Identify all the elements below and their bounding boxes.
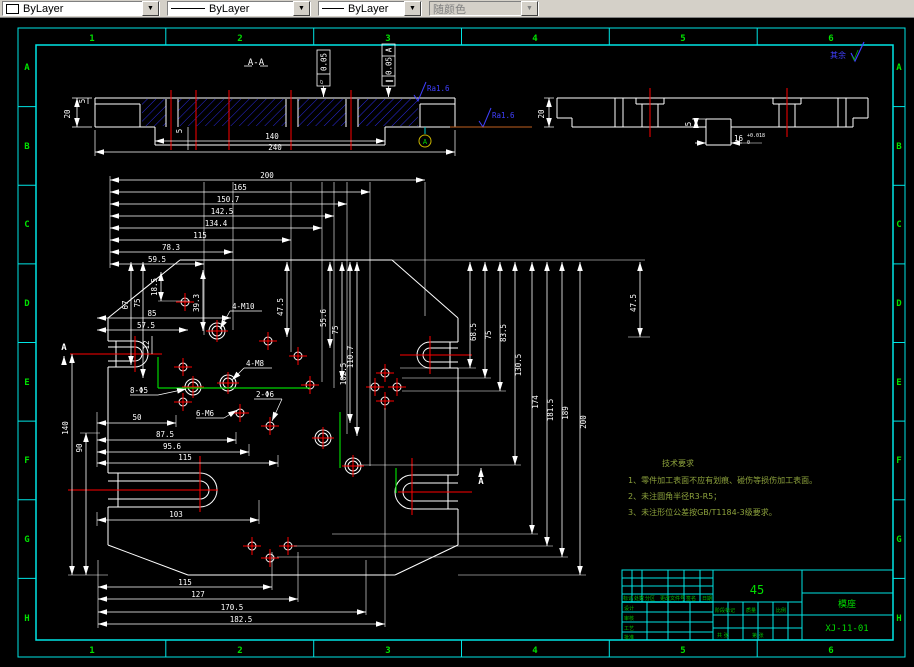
right-dims: 68.5 75 83.5 130.5 174 181.5 189 200 <box>469 262 588 575</box>
svg-text:6-M6: 6-M6 <box>196 409 215 418</box>
title-block: 45 模座 XJ-11-01 标记 处数 分区 更改文件号 签名 日期 设计 审… <box>622 570 893 641</box>
svg-text:共 张: 共 张 <box>717 632 729 639</box>
left-dims: 140 90 <box>61 354 86 575</box>
drawing-number: XJ-11-01 <box>825 624 868 634</box>
svg-text:C: C <box>24 220 29 230</box>
svg-text:240: 240 <box>268 143 282 152</box>
cad-window: ByLayer ▼ ByLayer ▼ ByLayer ▼ 随颜色 ▼ <box>0 0 914 667</box>
svg-text:140: 140 <box>265 132 279 141</box>
svg-text:3: 3 <box>385 34 390 44</box>
section-view-aa: A-A <box>63 44 532 156</box>
svg-text:18.5: 18.5 <box>150 278 159 296</box>
flatness-fcf: ▱ 0.05 <box>317 50 331 97</box>
svg-text:A: A <box>478 477 484 487</box>
svg-text:H: H <box>24 614 29 624</box>
svg-text:50: 50 <box>132 413 142 422</box>
svg-text:Ra1.6: Ra1.6 <box>492 111 515 120</box>
bottom-left-dims: 50 87.5 95.6 115 103 <box>97 413 278 520</box>
svg-text:67: 67 <box>121 300 130 309</box>
svg-text:134.4: 134.4 <box>205 219 228 228</box>
svg-text:4: 4 <box>532 34 538 44</box>
svg-text:75: 75 <box>331 325 340 334</box>
svg-text:181.5: 181.5 <box>546 399 555 422</box>
svg-text:12: 12 <box>142 340 151 349</box>
svg-text:G: G <box>24 535 29 545</box>
svg-text:其余: 其余 <box>830 50 846 60</box>
svg-text:▱: ▱ <box>317 79 326 84</box>
svg-text:比例: 比例 <box>776 607 786 614</box>
right-section-outline <box>557 98 868 145</box>
svg-text:127: 127 <box>191 590 205 599</box>
datum-symbol: A <box>419 127 431 147</box>
top-dims: 200 165 150.7 142.5 134.4 115 78.3 59.5 <box>110 171 425 264</box>
svg-text:F: F <box>896 456 901 466</box>
part-name: 模座 <box>838 598 856 610</box>
svg-text:签名: 签名 <box>686 595 696 602</box>
svg-text:5: 5 <box>175 129 184 134</box>
svg-text:2: 2 <box>237 34 242 44</box>
check-small-icon <box>852 50 858 60</box>
svg-text:处数: 处数 <box>634 595 644 602</box>
svg-text:阶段标记: 阶段标记 <box>715 607 735 614</box>
svg-text:103: 103 <box>169 510 183 519</box>
svg-text:189: 189 <box>561 406 570 420</box>
svg-text:78.3: 78.3 <box>162 243 180 252</box>
svg-text:59.5: 59.5 <box>148 255 166 264</box>
svg-text:2-Φ6: 2-Φ6 <box>256 390 275 399</box>
roughness-symbol-bottom: Ra1.6 <box>450 108 532 127</box>
svg-text:75: 75 <box>484 330 493 339</box>
svg-text:102.5: 102.5 <box>339 363 348 386</box>
svg-text:75: 75 <box>133 298 142 307</box>
svg-text:D: D <box>896 299 902 309</box>
svg-text:6: 6 <box>828 34 833 44</box>
svg-text:1: 1 <box>89 646 94 656</box>
svg-text:工艺: 工艺 <box>624 626 634 632</box>
svg-text:质量: 质量 <box>746 607 756 614</box>
svg-text:4-M8: 4-M8 <box>246 359 265 368</box>
svg-text:1: 1 <box>89 34 94 44</box>
right-section-centerlines <box>650 88 787 137</box>
note-item: 1、零件加工表面不应有划痕、碰伤等损伤加工表面。 <box>628 475 817 485</box>
svg-text:5: 5 <box>684 122 693 127</box>
svg-text:16: 16 <box>734 134 744 143</box>
svg-text:5: 5 <box>680 34 685 44</box>
svg-text:170.5: 170.5 <box>221 603 244 612</box>
svg-text:0.05: 0.05 <box>320 53 329 71</box>
svg-text:47.5: 47.5 <box>276 298 285 316</box>
svg-text:F: F <box>24 456 29 466</box>
svg-text:200: 200 <box>579 415 588 429</box>
svg-text:4-M10: 4-M10 <box>232 302 255 311</box>
svg-text:87.5: 87.5 <box>156 430 174 439</box>
svg-text:6: 6 <box>828 646 833 656</box>
svg-text:0: 0 <box>747 140 750 146</box>
notes-title: 技术要求 <box>662 458 694 468</box>
svg-text:E: E <box>896 378 901 388</box>
svg-text:182.5: 182.5 <box>230 615 253 624</box>
svg-text:分区: 分区 <box>645 595 655 602</box>
svg-text:140: 140 <box>61 421 70 435</box>
svg-text:8-Φ5: 8-Φ5 <box>130 386 148 395</box>
svg-text:150.7: 150.7 <box>217 195 240 204</box>
note-item: 2、未注圆角半径R3-R5； <box>628 491 721 501</box>
svg-text:165: 165 <box>233 183 247 192</box>
svg-text:A: A <box>423 138 428 146</box>
holes <box>174 293 406 567</box>
svg-text:H: H <box>896 614 901 624</box>
svg-text:55.6: 55.6 <box>319 308 328 327</box>
svg-text:2: 2 <box>237 646 242 656</box>
svg-text:4: 4 <box>532 646 538 656</box>
svg-text:115: 115 <box>178 453 192 462</box>
technical-notes: 技术要求 1、零件加工表面不应有划痕、碰伤等损伤加工表面。 2、未注圆角半径R3… <box>628 458 817 517</box>
svg-text:142.5: 142.5 <box>211 207 234 216</box>
svg-text:设计: 设计 <box>624 605 634 612</box>
svg-text:E: E <box>24 378 29 388</box>
svg-text:批准: 批准 <box>624 634 634 641</box>
section-aa-title: A-A <box>248 58 265 68</box>
interior-dims: 67 75 18.5 39.3 85 57.5 12 47.5 55.6 75 … <box>97 262 640 436</box>
svg-text:A: A <box>896 63 902 73</box>
svg-text:Ra1.6: Ra1.6 <box>427 84 450 93</box>
svg-text:174: 174 <box>531 395 540 409</box>
svg-text:5: 5 <box>78 99 87 104</box>
hole-labels: 4-M10 4-M8 2-Φ6 8-Φ5 6-M6 <box>130 302 282 421</box>
hole-centermarks <box>174 293 406 567</box>
material-value: 45 <box>750 583 764 597</box>
svg-text:83.5: 83.5 <box>499 324 508 342</box>
svg-text:20: 20 <box>63 109 72 119</box>
svg-text:0.05: 0.05 <box>385 57 394 75</box>
svg-text:审核: 审核 <box>624 615 634 622</box>
parallelism-fcf: ∥ 0.05 A <box>382 44 395 97</box>
section-view-right: 20 5 16 +0.018 0 其余 <box>537 42 868 146</box>
svg-text:标记: 标记 <box>623 595 633 602</box>
svg-text:57.5: 57.5 <box>137 321 155 330</box>
svg-text:200: 200 <box>260 171 274 180</box>
svg-text:B: B <box>24 142 30 152</box>
svg-text:A: A <box>24 63 30 73</box>
section-hatch <box>142 99 418 126</box>
plan-view: 200 165 150.7 142.5 134.4 115 78.3 59.5 … <box>61 171 650 628</box>
svg-text:日期: 日期 <box>702 596 712 602</box>
svg-text:3: 3 <box>385 646 390 656</box>
svg-text:B: B <box>896 142 902 152</box>
svg-text:95.6: 95.6 <box>163 442 182 451</box>
svg-text:D: D <box>24 299 30 309</box>
svg-text:115: 115 <box>193 231 207 240</box>
svg-text:+0.018: +0.018 <box>747 133 765 139</box>
svg-text:A: A <box>385 47 394 52</box>
u-slots <box>108 341 458 509</box>
svg-text:A: A <box>61 343 67 353</box>
svg-text:C: C <box>896 220 901 230</box>
svg-text:更改文件号: 更改文件号 <box>660 595 685 602</box>
svg-text:5: 5 <box>680 646 685 656</box>
svg-text:39.3: 39.3 <box>192 294 201 312</box>
drawing-canvas[interactable]: 123456 123456 ABCDEFGH ABCDEFGH A-A <box>0 0 914 667</box>
extension-lines <box>68 176 650 628</box>
svg-text:20: 20 <box>537 109 546 119</box>
svg-text:68.5: 68.5 <box>469 323 478 341</box>
svg-text:130.5: 130.5 <box>514 354 523 377</box>
svg-text:47.5: 47.5 <box>629 294 638 312</box>
svg-text:G: G <box>896 535 901 545</box>
svg-text:115: 115 <box>178 578 192 587</box>
bottom-dims: 115 127 170.5 182.5 <box>98 578 385 624</box>
svg-text:∥: ∥ <box>385 79 394 83</box>
svg-text:90: 90 <box>75 443 84 453</box>
svg-text:85: 85 <box>147 309 156 318</box>
note-item: 3、未注形位公差按GB/T1184-3级要求。 <box>628 507 777 517</box>
svg-text:第 张: 第 张 <box>752 632 764 639</box>
